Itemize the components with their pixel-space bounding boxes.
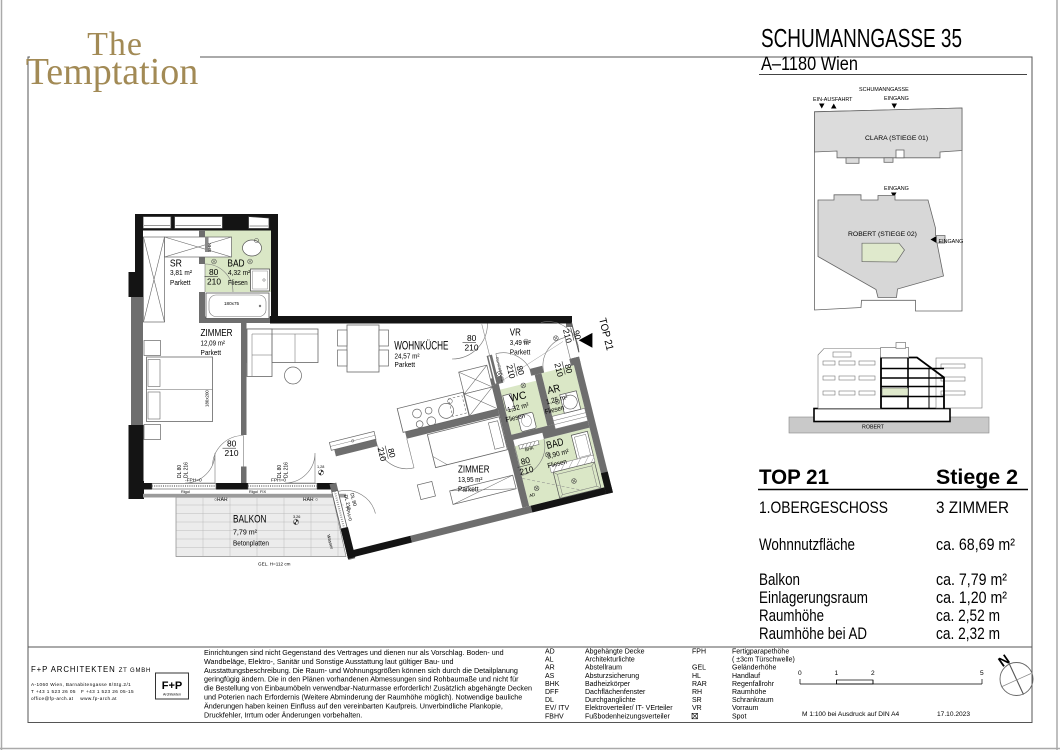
svg-text:2: 2 bbox=[871, 670, 875, 677]
svg-text:1,28: 1,28 bbox=[317, 465, 324, 469]
svg-text:A-1060 Wien, Barnabitengasse 8: A-1060 Wien, Barnabitengasse 8/Stg.2/1 bbox=[31, 682, 131, 687]
svg-text:Spot: Spot bbox=[732, 713, 746, 720]
svg-text:die Bestellung von Einbaumöbel: die Bestellung von Einbaumöbeln verwendb… bbox=[204, 684, 532, 693]
svg-text:Druckfehler, Irrtum oder Änder: Druckfehler, Irrtum oder Änderungen vorb… bbox=[204, 710, 362, 719]
svg-text:CLARA (STIEGE 01): CLARA (STIEGE 01) bbox=[865, 135, 928, 142]
svg-text:Wandbeläge, Elektro-, Sanitär: Wandbeläge, Elektro-, Sanitär und Sonsti… bbox=[204, 657, 453, 666]
svg-text:VR: VR bbox=[692, 705, 702, 712]
svg-text:A–1180 Wien: A–1180 Wien bbox=[761, 54, 858, 75]
svg-text:Rigol: Rigol bbox=[181, 489, 190, 494]
svg-text:210: 210 bbox=[465, 343, 479, 353]
svg-text:ROBERT: ROBERT bbox=[862, 425, 884, 431]
svg-text:1: 1 bbox=[835, 670, 839, 677]
svg-text:und Poterien nach Erfordernis: und Poterien nach Erfordernis (Weitere A… bbox=[204, 693, 522, 702]
svg-text:ca. 2,52 m: ca. 2,52 m bbox=[936, 606, 1000, 625]
svg-text:80: 80 bbox=[227, 439, 237, 449]
svg-text:3 ZIMMER: 3 ZIMMER bbox=[936, 498, 1009, 517]
svg-text:T +43 1 523 26 05 F +43 1 52: T +43 1 523 26 05 F +43 1 523 26 05-15 bbox=[31, 689, 134, 694]
svg-text:FPH=0: FPH=0 bbox=[271, 478, 286, 484]
svg-text:17.10.2023: 17.10.2023 bbox=[937, 711, 970, 718]
svg-text:Abstellraum: Abstellraum bbox=[585, 665, 622, 672]
svg-text:80: 80 bbox=[209, 267, 219, 277]
svg-text:ca. 7,79 m²: ca. 7,79 m² bbox=[936, 570, 1007, 589]
svg-text:180x200: 180x200 bbox=[205, 390, 210, 407]
svg-text:13,95 m²: 13,95 m² bbox=[458, 475, 483, 484]
svg-text:Handlauf: Handlauf bbox=[732, 673, 760, 680]
svg-text:Schrankraum: Schrankraum bbox=[732, 697, 774, 704]
svg-text:EIN-AUSFAHRT: EIN-AUSFAHRT bbox=[813, 97, 853, 103]
svg-text:ca. 2,32 m: ca. 2,32 m bbox=[936, 624, 1000, 643]
svg-text:3,81 m²: 3,81 m² bbox=[170, 268, 193, 277]
svg-text:Einrichtungen sind nicht Gegen: Einrichtungen sind nicht Gegenstand des … bbox=[204, 648, 504, 657]
svg-text:Rigol FIX: Rigol FIX bbox=[249, 489, 266, 494]
svg-text:Einlagerungsraum: Einlagerungsraum bbox=[759, 588, 868, 607]
svg-text:Architekten: Architekten bbox=[163, 693, 181, 697]
svg-text:Änderungen haben keinen Einflu: Änderungen haben keinen Einfluss auf den… bbox=[204, 701, 503, 710]
svg-text:Raumhöhe: Raumhöhe bbox=[759, 606, 824, 625]
svg-text:M 1:100 bei Ausdruck auf DIN A: M 1:100 bei Ausdruck auf DIN A4 bbox=[802, 711, 899, 718]
svg-text:180x75: 180x75 bbox=[224, 301, 240, 306]
svg-text:AL: AL bbox=[545, 657, 554, 664]
svg-text:12,09 m²: 12,09 m² bbox=[201, 338, 226, 347]
svg-text:office@fp-arch.at www.fp-ar: office@fp-arch.at www.fp-arch.at bbox=[31, 696, 117, 701]
svg-text:Vorraum: Vorraum bbox=[732, 705, 759, 712]
svg-text:DL 80: DL 80 bbox=[277, 465, 283, 478]
svg-text:EINGANG: EINGANG bbox=[884, 96, 909, 102]
svg-text:SCHUMANNGASSE 35: SCHUMANNGASSE 35 bbox=[761, 23, 962, 53]
svg-text:-FPH=0: -FPH=0 bbox=[185, 478, 202, 484]
svg-text:Abgehängte Decke: Abgehängte Decke bbox=[585, 649, 645, 656]
svg-text:DL 80: DL 80 bbox=[177, 465, 183, 478]
svg-text:RAR ○: RAR ○ bbox=[303, 497, 318, 503]
svg-text:Raumhöhe bei AD: Raumhöhe bei AD bbox=[759, 624, 867, 643]
svg-text:AS: AS bbox=[545, 673, 555, 680]
svg-text:0: 0 bbox=[798, 670, 802, 677]
svg-text:ca. 68,69 m²: ca. 68,69 m² bbox=[936, 535, 1015, 554]
svg-text:VR: VR bbox=[510, 327, 521, 339]
svg-text:7,79 m²: 7,79 m² bbox=[233, 528, 258, 537]
svg-text:210: 210 bbox=[225, 448, 239, 458]
svg-text:BHK: BHK bbox=[207, 243, 212, 252]
svg-text:RH: RH bbox=[692, 689, 702, 696]
svg-text:GEL. H=112 cm: GEL. H=112 cm bbox=[258, 562, 291, 567]
svg-text:Stiege 2: Stiege 2 bbox=[936, 465, 1018, 489]
svg-text:EV/ ITV: EV/ ITV bbox=[545, 705, 569, 712]
svg-text:GEL: GEL bbox=[692, 665, 706, 672]
svg-text:ca. 1,20 m²: ca. 1,20 m² bbox=[936, 588, 1007, 607]
svg-text:RAR: RAR bbox=[692, 681, 707, 688]
svg-text:ZIMMER: ZIMMER bbox=[458, 464, 490, 476]
svg-text:TOP 21: TOP 21 bbox=[759, 465, 829, 489]
svg-text:( ±3cm Türschwelle): ( ±3cm Türschwelle) bbox=[732, 657, 795, 664]
svg-text:SCHUMANNGASSE: SCHUMANNGASSE bbox=[859, 87, 909, 93]
svg-text:Geländerhöhe: Geländerhöhe bbox=[732, 665, 776, 672]
svg-text:Fußbodenheizungsverteiler: Fußbodenheizungsverteiler bbox=[585, 713, 670, 720]
svg-text:Wohnnutzfläche: Wohnnutzfläche bbox=[759, 535, 855, 554]
svg-text:3,26: 3,26 bbox=[293, 515, 300, 519]
svg-text:Temptation: Temptation bbox=[26, 51, 199, 93]
svg-text:Ausstattungsbeschreibung. Die: Ausstattungsbeschreibung. Die Raum- und … bbox=[204, 666, 518, 675]
svg-text:FPH: FPH bbox=[692, 649, 706, 656]
svg-text:210: 210 bbox=[207, 277, 221, 287]
svg-text:Badheizkörper: Badheizkörper bbox=[585, 681, 631, 688]
svg-text:Betonplatten: Betonplatten bbox=[233, 538, 269, 547]
svg-text:DL 216: DL 216 bbox=[284, 462, 290, 478]
svg-text:ROBERT (STIEGE 02): ROBERT (STIEGE 02) bbox=[848, 231, 917, 238]
svg-text:80: 80 bbox=[467, 333, 477, 343]
svg-text:Parkett: Parkett bbox=[201, 348, 222, 357]
svg-text:Parkett: Parkett bbox=[510, 347, 531, 356]
svg-text:Regenfallrohr: Regenfallrohr bbox=[732, 681, 775, 688]
svg-text:DL 216: DL 216 bbox=[184, 462, 190, 478]
svg-text:DL: DL bbox=[545, 697, 554, 704]
svg-text:Architekturlichte: Architekturlichte bbox=[585, 657, 635, 664]
svg-text:Parkett: Parkett bbox=[395, 360, 416, 369]
svg-text:HL: HL bbox=[692, 673, 701, 680]
svg-text:SR: SR bbox=[692, 697, 702, 704]
svg-text:Fertigparapethöhe: Fertigparapethöhe bbox=[732, 649, 789, 656]
svg-text:Balkon: Balkon bbox=[759, 570, 800, 589]
svg-text:FBHV: FBHV bbox=[545, 713, 564, 720]
svg-text:ZIMMER: ZIMMER bbox=[201, 327, 233, 339]
svg-text:Durchganglichte: Durchganglichte bbox=[585, 697, 636, 704]
svg-text:1.OBERGESCHOSS: 1.OBERGESCHOSS bbox=[759, 498, 888, 517]
svg-text:F+P: F+P bbox=[162, 680, 182, 692]
svg-text:Elektroverteiler/ IT- VErteile: Elektroverteiler/ IT- VErteiler bbox=[585, 705, 673, 712]
svg-text:EINGANG: EINGANG bbox=[884, 186, 909, 192]
svg-text:5: 5 bbox=[980, 670, 984, 677]
svg-text:Absturzsicherung: Absturzsicherung bbox=[585, 673, 639, 680]
svg-text:Raumhöhe: Raumhöhe bbox=[732, 689, 766, 696]
svg-text:Fliesen: Fliesen bbox=[228, 278, 248, 287]
svg-text:○RAR: ○RAR bbox=[214, 497, 228, 503]
svg-text:BHK: BHK bbox=[545, 681, 560, 688]
svg-text:Dachflächenfenster: Dachflächenfenster bbox=[585, 689, 646, 696]
svg-text:BALKON: BALKON bbox=[233, 514, 267, 526]
svg-text:DFF: DFF bbox=[545, 689, 559, 696]
svg-text:Parkett: Parkett bbox=[170, 278, 191, 287]
svg-text:AR: AR bbox=[545, 665, 555, 672]
svg-text:EINGANG: EINGANG bbox=[939, 239, 964, 245]
svg-text:AD: AD bbox=[545, 649, 555, 656]
svg-text:geringfügig ändern. Die in den: geringfügig ändern. Die in den Plänen vo… bbox=[204, 675, 519, 684]
svg-text:Parkett: Parkett bbox=[458, 485, 479, 494]
svg-text:4,32 m²: 4,32 m² bbox=[228, 268, 251, 277]
